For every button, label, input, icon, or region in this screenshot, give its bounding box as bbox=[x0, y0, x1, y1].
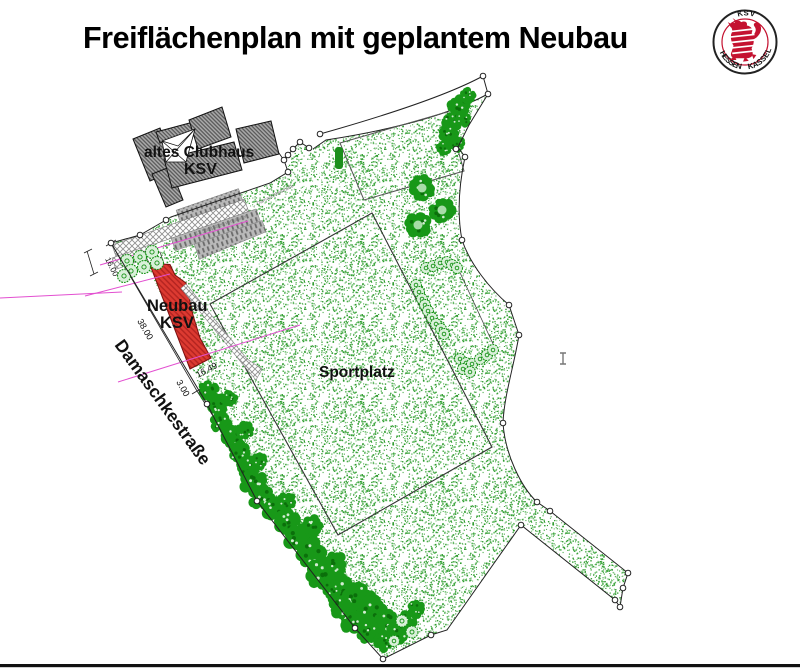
svg-text:38.00: 38.00 bbox=[135, 317, 155, 342]
svg-text:Sportplatz: Sportplatz bbox=[319, 364, 395, 381]
svg-text:KSV: KSV bbox=[184, 161, 217, 178]
svg-text:3.00: 3.00 bbox=[174, 378, 191, 398]
svg-text:S: S bbox=[744, 8, 749, 17]
svg-text:KSV: KSV bbox=[160, 314, 194, 332]
svg-text:Neubau: Neubau bbox=[147, 297, 208, 315]
svg-text:altes Clubhaus: altes Clubhaus bbox=[144, 144, 254, 161]
